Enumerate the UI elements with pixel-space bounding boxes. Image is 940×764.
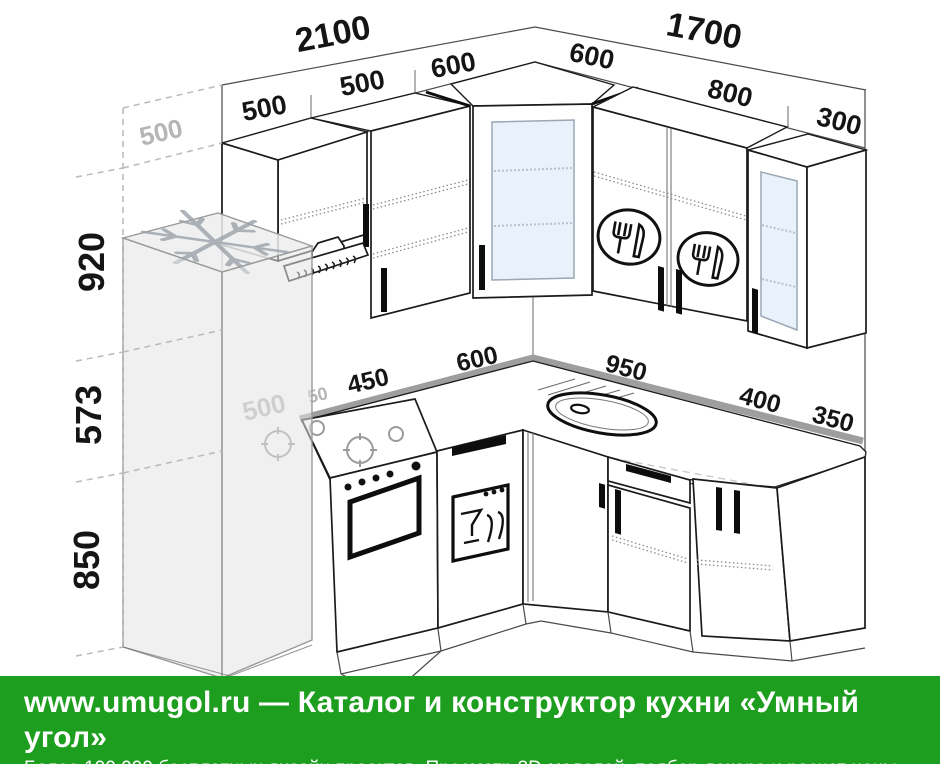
dim-upper-right-1: 600 [567,37,617,76]
cabinet-handle [615,489,621,535]
dim-height-573: 573 [68,385,109,445]
cabinet-handle [752,288,758,334]
dim-upper-left-2: 500 [337,64,387,102]
cabinet-handle [734,490,740,534]
footer-subtitle: Более 100 000 бесплатных дизайн проектов… [24,758,940,764]
base-cabinet-400 [608,457,690,631]
cabinet-handle [716,487,722,531]
dishwasher [437,430,523,628]
dim-left-wall-total: 2100 [292,8,374,60]
wall-cabinet-right-300-glass [748,134,866,348]
dim-ghost-top-cabinet: 500 [136,113,185,152]
dim-upper-right-3: 300 [814,101,865,141]
kitchen-drawing: 2100 1700 500 500 600 600 800 300 500 50… [0,0,940,764]
dim-right-wall-total: 1700 [663,5,745,57]
cabinet-handle [381,268,387,312]
sink-base-cabinet [523,430,608,612]
cabinet-handle [479,245,485,290]
dim-height-850: 850 [66,530,107,590]
dim-upper-left-1: 500 [239,89,289,127]
glass-door-panel [492,120,574,280]
dishwasher-icon [453,485,508,561]
height-dimensions: 920 573 850 [66,168,123,656]
footer-banner: www.umugol.ru — Каталог и конструктор ку… [0,676,940,764]
cabinet-handle [599,483,605,509]
kitchen-layout-page: 2100 1700 500 500 600 600 800 300 500 50… [0,0,940,764]
cabinet-handle [658,266,664,312]
cabinet-handle [363,204,369,247]
glass-door-panel [761,172,797,330]
dim-height-920: 920 [71,232,112,292]
footer-site-title: www.umugol.ru — Каталог и конструктор ку… [24,686,940,755]
cabinet-handle [676,269,682,315]
